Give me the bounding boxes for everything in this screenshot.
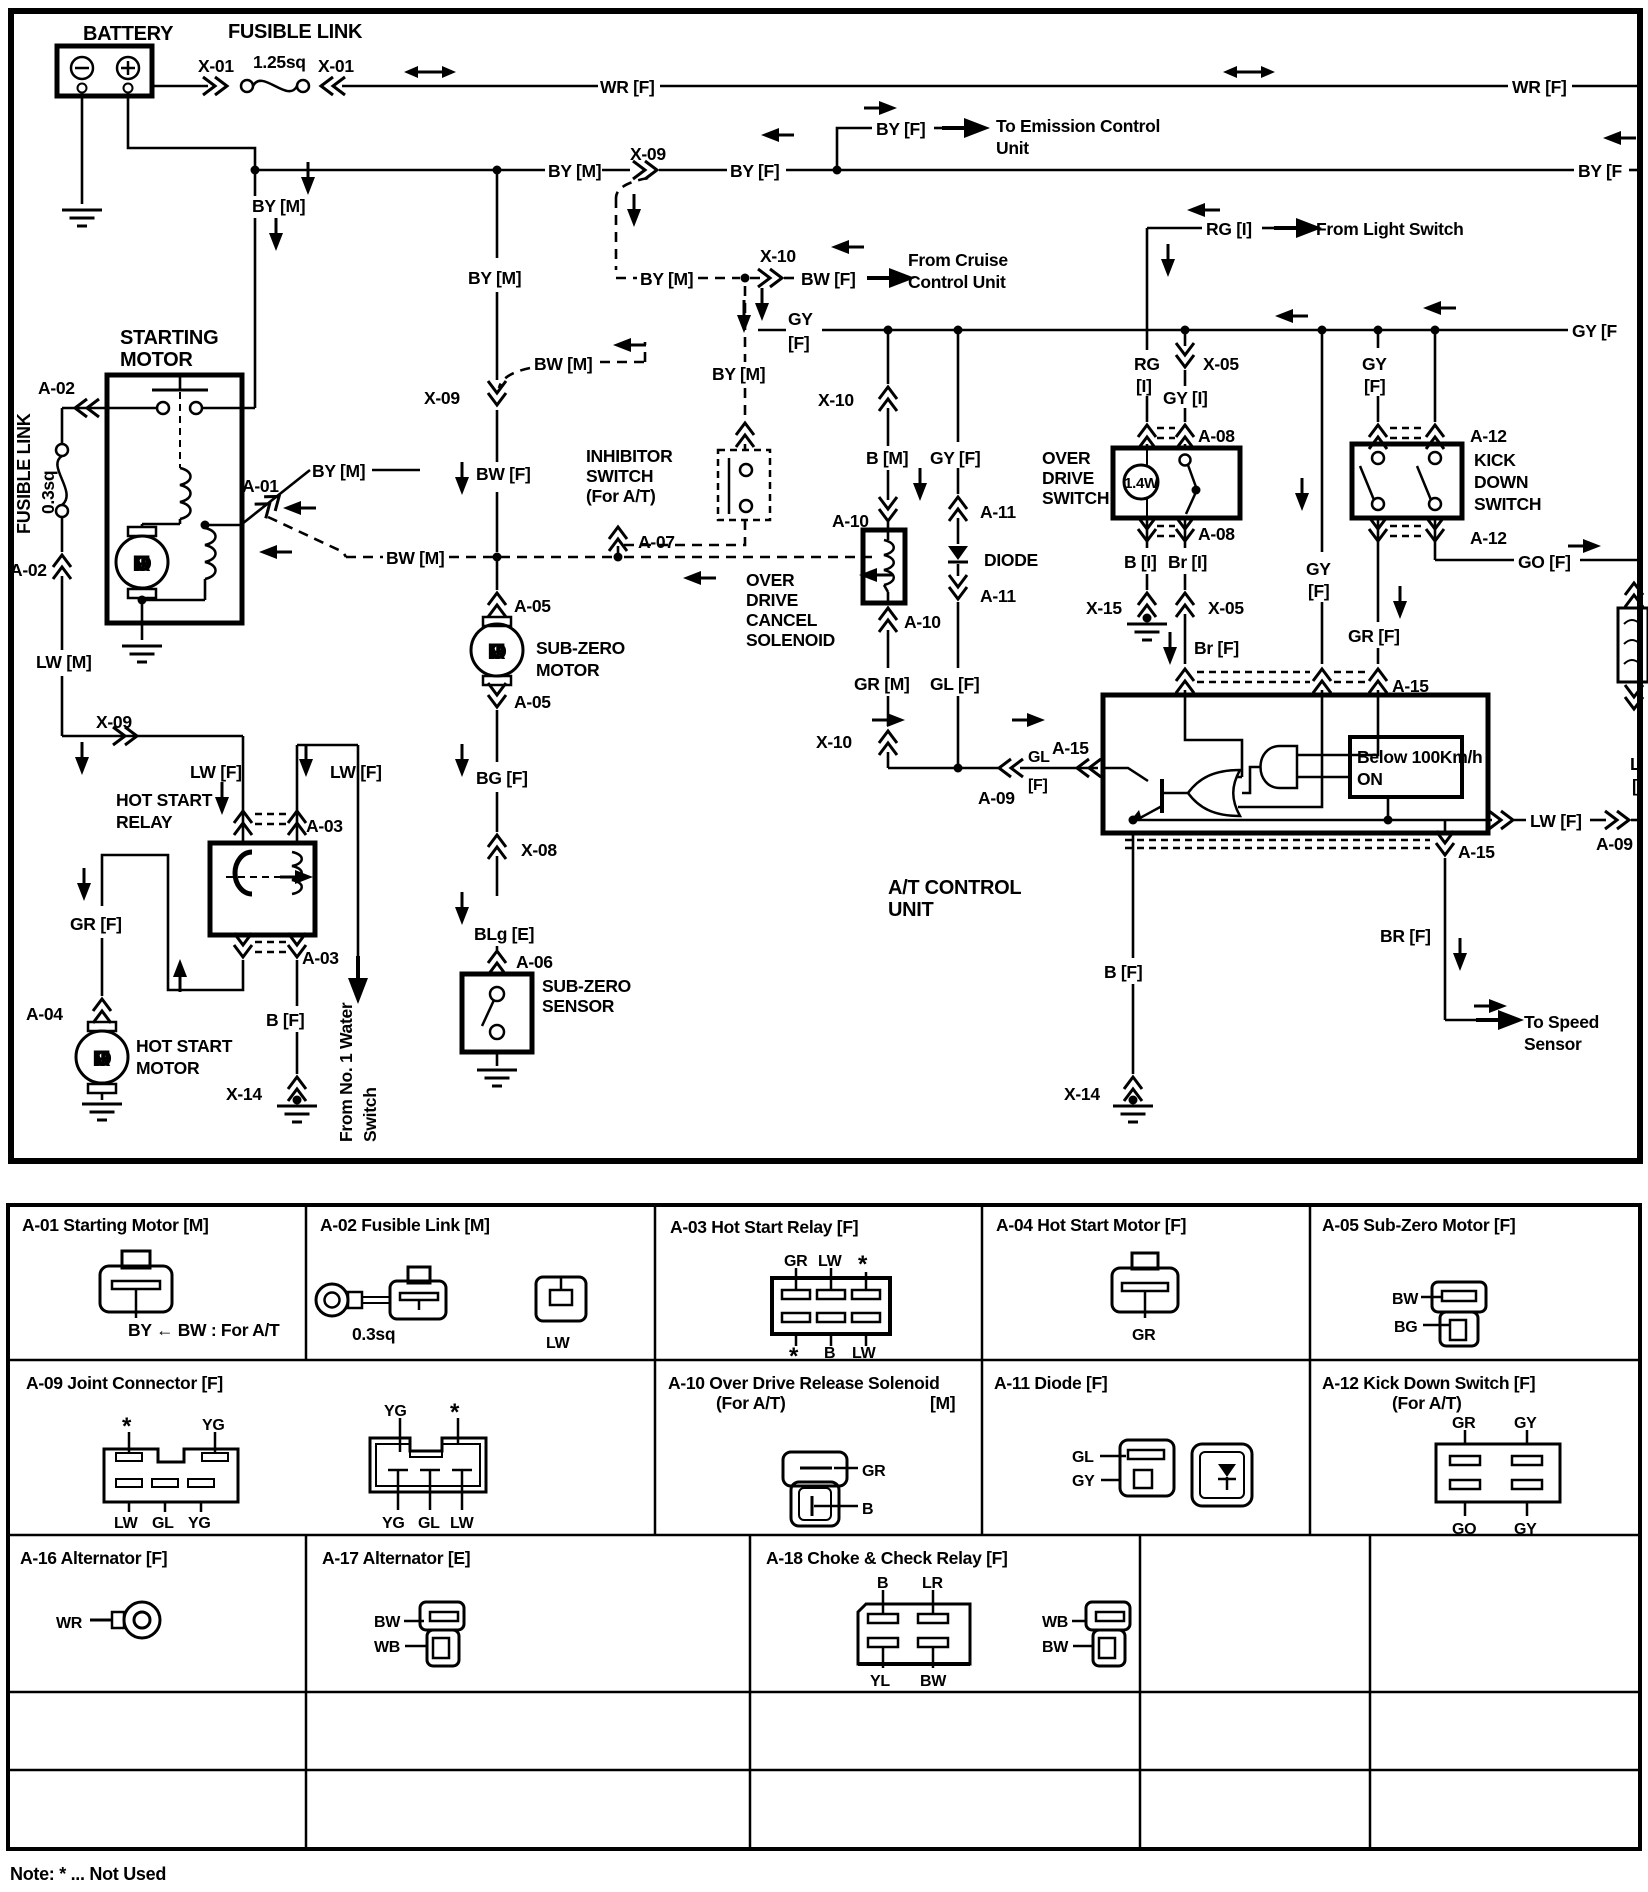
pin-label: YL [870,1673,890,1690]
connector-label: A-08 [1198,524,1235,544]
connector-icon [1605,811,1629,829]
connector-label: A-11 [980,502,1016,522]
cell-title: A-01 Starting Motor [M] [22,1215,209,1235]
connector-label: A-02 [10,560,47,580]
connector-label: A-08 [1198,426,1235,446]
wire-label: BY [M] [252,196,305,216]
connector-icon [488,835,506,859]
wire-label: BW [F] [801,269,856,289]
connector-label: X-10 [818,390,854,410]
connector-icon [321,77,345,95]
wr-wire: WR [F] WR [F] [404,66,1640,97]
component-label: STARTING [120,327,218,349]
wire-label: B [F] [1104,962,1142,982]
wire-label: [F] [1364,376,1385,396]
connector-label: A-02 [38,378,75,398]
wire-label: LW [M] [36,652,92,672]
condition-label: Below 100Km/h [1357,747,1482,767]
component-label: MOTOR [120,349,193,371]
pin-label: BW [920,1673,947,1690]
direction-arrow-icon [913,468,927,501]
direction-arrow-icon [280,870,313,884]
cell-caption: BY ← BW : For A/T [128,1320,280,1340]
destination-label: Switch [360,1087,380,1142]
diode-branch: GY [F] A-11 DIODE A-11 GL [F] [913,330,1038,768]
pin-label: GR [784,1253,808,1270]
fusible-link-125: FUSIBLE LINK X-01 1.25sq X-01 [152,21,598,95]
wire-label: GR [F] [1348,626,1400,646]
ground-icon [82,1104,122,1120]
pin-label: GR [1132,1327,1156,1344]
connector-icon [1369,669,1387,693]
pin-label: B [862,1501,873,1518]
wire-label: L [1630,754,1641,774]
fusible-link-03: FUSIBLE LINK 0.3sq A-02 LW [M] [10,413,92,736]
destination-label: From Cruise [908,250,1008,270]
ground-icon [122,646,162,662]
component-label: A/T CONTROL [888,877,1021,899]
table-cell-a11: A-11 Diode [F] GL GY [994,1373,1252,1506]
table-cell-a04: A-04 Hot Start Motor [F] GR [996,1215,1186,1344]
table-cell-a16: A-16 Alternator [F] WR [20,1548,167,1638]
direction-arrow-icon [755,288,769,321]
connector-label: X-01 [318,56,354,76]
component-label: SWITCH [1474,494,1541,514]
connector-label: X-15 [1086,598,1122,618]
pin-label: BW [1392,1291,1419,1308]
connector-label: X-01 [198,56,234,76]
pin-label: YG [188,1515,211,1532]
pin-label: * [789,1343,799,1370]
wire-label: GY [1362,354,1387,374]
wire-label: BY [F] [876,119,925,139]
pin-label: * [858,1251,868,1278]
connector-label: A-09 [978,788,1015,808]
destination-label: To Speed [1524,1012,1599,1032]
fusible-link-label: FUSIBLE LINK [228,21,363,43]
destination-label: From No. 1 Water [336,1002,356,1142]
connector-label: A-05 [514,596,551,616]
or-gate-icon [1188,770,1240,816]
ground-icon [1127,624,1167,640]
direction-arrow-icon [1423,301,1456,315]
connector-icon [1313,669,1331,693]
direction-arrow-icon [455,892,469,925]
wire-label: GY [I] [1163,388,1208,408]
connector-icon [999,759,1023,777]
destination-arrow-icon [348,956,368,1004]
cell-title: A-02 Fusible Link [M] [320,1215,490,1235]
wire-label: RG [1134,354,1160,374]
wire-label: GY [1306,559,1331,579]
wire-gauge-label: 0.3sq [352,1324,395,1344]
wire-label: BLg [E] [474,924,534,944]
component-label: HOT START [116,790,213,810]
starting-motor: STARTING MOTOR A-02 FUSIBLE LINK 0.3sq A… [10,327,420,736]
connector-icon [488,381,506,405]
direction-arrow-icon [455,744,469,777]
cell-title: A-09 Joint Connector [F] [26,1373,223,1393]
component-label: OVER [1042,448,1091,468]
at-control-unit: A-15 Below 100Km/h ON A/T CONTROL UNIT L… [888,669,1640,1122]
component-label: DIODE [984,550,1038,570]
direction-arrow-icon [1275,309,1308,323]
battery-label: BATTERY [83,23,174,45]
wire-label: [F] [1308,581,1329,601]
sub-zero-column: BY [M] X-09 BW [M] BW [F] A-05 MOTOR SUB… [424,166,646,1087]
connector-icon [1138,593,1156,617]
pin-label: * [122,1413,132,1440]
destination-label: Control Unit [908,272,1006,292]
connector-icon [53,555,71,579]
direction-arrow-icon [283,501,316,515]
connector-icon [758,269,782,287]
wire-label: Br [F] [1194,638,1239,658]
direction-arrow-icon [864,101,897,115]
pin-label: GY [1514,1521,1537,1538]
component-label: DRIVE [1042,468,1094,488]
connector-label: A-15 [1052,738,1089,758]
component-label: MOTOR [136,1058,200,1078]
component-label: FUSIBLE LINK [14,413,34,534]
diode-icon [948,546,968,560]
connector-label: A-12 [1470,528,1507,548]
pin-label: LW [114,1515,139,1532]
component-label: DOWN [1474,472,1528,492]
destination-label: From Light Switch [1316,219,1464,239]
component-label: SUB-ZERO [536,638,625,658]
direction-arrow-icon [269,218,283,251]
component-label: SWITCH [1042,488,1109,508]
wire-label: B [M] [866,448,908,468]
pin-label: GL [152,1515,174,1532]
pin-label: GY [1514,1415,1537,1432]
wiring-diagram-page: BATTERY FUSIBLE LINK X-01 1.25sq X-01 WR… [0,0,1648,1892]
connector-icon [1176,593,1194,617]
wire-label: GL [F] [930,674,979,694]
direction-arrow-icon [831,240,864,254]
connector-icon [879,497,897,521]
connector-label: X-05 [1208,598,1244,618]
wire-label: RG [I] [1206,219,1252,239]
pin-label: WB [1042,1614,1068,1631]
motor-m: MOTOR [92,1046,112,1071]
component-label: OVER [746,570,795,590]
cell-title: A-12 Kick Down Switch [F] [1322,1373,1535,1393]
pin-label: GL [418,1515,440,1532]
hot-start-relay: X-09 LW [F] HOT START RELAY A-03 LW [F] … [62,712,382,1142]
direction-arrow-icon [1187,203,1220,217]
ground-icon [277,1106,317,1122]
direction-arrow-icon [77,868,91,901]
pin-label: GL [1072,1449,1094,1466]
pin-label: BG [1394,1319,1417,1336]
connector-label: A-03 [302,948,339,968]
battery: BATTERY [57,23,255,226]
connector-label: X-10 [816,732,852,752]
connector-table: A-01 Starting Motor [M] BY ← BW : For A/… [8,1205,1640,1849]
table-cell-a09: A-09 Joint Connector [F] * YG LW GL YG Y… [26,1373,486,1532]
ground-icon [477,1070,517,1086]
wire-label: LW [F] [1530,811,1582,831]
wire-label: GO [F] [1518,552,1571,572]
direction-arrow-icon [301,162,315,195]
pin-label: YG [384,1403,407,1420]
wire-label: BY [M] [468,268,521,288]
wire-label: WR [F] [600,77,655,97]
component-label: SUB-ZERO [542,976,631,996]
direction-arrow-icon [1474,999,1507,1013]
table-cell-a12: A-12 Kick Down Switch [F] (For A/T) GR G… [1322,1373,1560,1538]
connector-label: A-07 [638,532,675,552]
connector-label: A-09 [1596,834,1633,854]
direction-arrow-icon [1568,539,1601,553]
connector-label: A-04 [26,1004,63,1024]
overdrive-cancel-solenoid: X-10 B [M] A-10 OVER DRIVE CANCEL SOLENO… [746,330,954,768]
cell-title: A-11 Diode [F] [994,1373,1107,1393]
connector-icon [949,575,967,599]
direction-arrow-icon [259,545,292,559]
component-label: HOT START [136,1036,233,1056]
direction-arrow-icon [455,462,469,495]
bulb-wattage: 1.4W [1124,475,1159,492]
direction-arrow-icon [683,571,716,585]
wire-label: Br [I] [1168,552,1207,572]
pin-label: BW [374,1614,401,1631]
ground-icon [62,210,102,226]
table-cell-a18: A-18 Choke & Check Relay [F] B LR YL BW … [766,1548,1130,1690]
connector-icon [949,497,967,521]
sub-zero-sensor: SUB-ZERO SENSOR [462,974,631,1086]
component-label: KICK [1474,450,1516,470]
destination-arrow-icon [942,118,990,138]
right-edge-partials: L [ [1618,583,1648,796]
direction-arrow-icon [872,713,905,727]
direction-arrow-icon [1161,244,1175,277]
wiring-diagram: BATTERY FUSIBLE LINK X-01 1.25sq X-01 WR… [0,0,1648,1892]
direction-arrow-icon [299,744,313,777]
wire-label: [F] [788,333,809,353]
wire-label: B [F] [266,1010,304,1030]
destination-arrow-icon [1274,218,1322,238]
connector-icon [93,999,111,1023]
motor-m: MOTOR [487,639,507,664]
wire-label: BY [M] [312,461,365,481]
wire-label: BY [F [1578,161,1622,181]
cell-subtitle: (For A/T) [1392,1393,1462,1413]
pin-label: GR [862,1463,886,1480]
direction-arrow-icon [215,782,229,815]
cell-title: A-03 Hot Start Relay [F] [670,1217,858,1237]
direction-arrow-icon [173,959,187,992]
component-label: MOTOR [536,660,600,680]
connector-label: X-05 [1203,354,1239,374]
ground-icon [1113,1106,1153,1122]
direction-arrow-icon [1453,938,1467,971]
pin-label: YG [382,1515,405,1532]
pin-label: B [877,1575,888,1592]
pin-label: YG [202,1417,225,1434]
direction-arrow-icon [1012,713,1045,727]
destination-label: Unit [996,138,1029,158]
connector-label: A-03 [306,816,343,836]
direction-arrow-icon [1603,131,1636,145]
cell-subtitle: [M] [930,1393,955,1413]
wire-label: LW [F] [330,762,382,782]
component-label: SWITCH [586,466,653,486]
connector-icon [879,387,897,411]
connector-label: X-14 [1064,1084,1100,1104]
junction-dot [614,553,623,562]
connector-icon [488,683,506,707]
pin-label: LW [852,1345,877,1362]
wire-label: BY [F] [730,161,779,181]
connector-icon [879,731,897,755]
pin-label: B [824,1345,835,1362]
direction-arrow-icon [737,300,751,333]
bw-m-dashed-wire: BW [M] [259,517,892,585]
cell-title: A-17 Alternator [E] [322,1548,470,1568]
connector-label: X-09 [424,388,460,408]
wire-label: GY [788,309,813,329]
diode-icon [1218,1464,1236,1477]
table-cell-a03: A-03 Hot Start Relay [F] GR LW * * B LW [670,1217,890,1370]
direction-arrow-icon [761,128,794,142]
wire-label: [ [1632,776,1638,796]
wire-label: BW [M] [386,548,444,568]
connector-icon [1176,343,1194,367]
pin-label: LW [450,1515,475,1532]
component-label: (For A/T) [586,486,656,506]
junction-dot [741,274,750,283]
hot-start-motor: A-04 MOTOR HOT START MOTOR [26,999,233,1120]
connector-label: A-01 [242,476,279,496]
component-label: SENSOR [542,996,615,1016]
connector-icon [1489,811,1513,829]
cell-title: A-10 Over Drive Release Solenoid [668,1373,940,1393]
connector-icon [488,951,506,975]
direction-arrow-icon [1163,632,1177,665]
wire-label: GL [1028,749,1050,766]
gl-a09-wire: A-09 GL [F] A-15 [872,713,1101,808]
wire-label: BW [M] [534,354,592,374]
destination-label: To Emission Control [996,116,1160,136]
destination-arrow-icon [1476,1010,1524,1030]
condition-label: ON [1357,769,1383,789]
connector-label: A-06 [516,952,553,972]
table-cell-a17: A-17 Alternator [E] BW WB [322,1548,470,1666]
component-label: RELAY [116,812,173,832]
pin-label: WR [56,1615,83,1632]
pin-label: LW [818,1253,843,1270]
cell-title: A-16 Alternator [F] [20,1548,167,1568]
component-label: SOLENOID [746,630,835,650]
component-label: UNIT [888,899,934,921]
note-text: Note: * ... Not Used [10,1864,166,1884]
wire-label: WR [F] [1512,77,1567,97]
connector-icon [488,593,506,617]
connector-label: X-08 [521,840,557,860]
pin-label: GO [1452,1521,1476,1538]
x09-dashed-branch: BY [M] X-10 BW [F] From Cruise Control U… [616,178,1008,292]
pin-label: LW [546,1335,571,1352]
wire-label: GR [F] [70,914,122,934]
pin-label: GY [1072,1473,1095,1490]
wire-label: GY [F [1572,321,1617,341]
connector-label: A-15 [1458,842,1495,862]
direction-arrow-icon [75,742,89,775]
wire-label: BY [M] [640,269,693,289]
wire-label: [F] [1028,777,1048,794]
wire-label: LW [F] [190,762,242,782]
pin-label: BW [1042,1639,1069,1656]
connector-label: X-10 [760,246,796,266]
cell-subtitle: (For A/T) [716,1393,786,1413]
wire-label: [I] [1136,376,1152,396]
table-cell-a10: A-10 Over Drive Release Solenoid (For A/… [668,1373,955,1526]
connector-label: A-12 [1470,426,1507,446]
direction-arrow-icon [1295,478,1309,511]
pin-label: LR [922,1575,943,1592]
connector-label: A-10 [904,612,941,632]
pin-label: * [450,1399,460,1426]
connector-icon [736,423,754,447]
pin-label: GR [1452,1415,1476,1432]
wire-gauge-label: 0.3sq [38,471,58,514]
wire-label: B [I] [1124,552,1157,572]
wire-label: BY [M] [712,364,765,384]
direction-arrow-icon [1393,586,1407,619]
cell-title: A-04 Hot Start Motor [F] [996,1215,1186,1235]
wire-label: BG [F] [476,768,528,788]
connector-icon [1176,669,1194,693]
cell-title: A-18 Choke & Check Relay [F] [766,1548,1008,1568]
wire-gauge-label: 1.25sq [253,52,306,72]
wire-label: GY [F] [930,448,980,468]
pin-label: WB [374,1639,400,1656]
connector-label: A-05 [514,692,551,712]
direction-arrow-icon [613,338,646,352]
component-label: CANCEL [746,610,818,630]
table-cell-a05: A-05 Sub-Zero Motor [F] BW BG [1322,1215,1515,1346]
destination-label: Sensor [1524,1034,1582,1054]
table-cell-a01: A-01 Starting Motor [M] BY ← BW : For A/… [22,1215,280,1340]
kick-down-switch: GY [F] GY [F] A-12 KICK DOWN SWITCH A-12… [1295,330,1640,664]
and-gate-icon [1261,746,1298,788]
wire-label: GR [M] [854,674,910,694]
component-label: INHIBITOR [586,446,673,466]
footnote: Note: * ... Not Used [10,1864,166,1884]
cell-title: A-05 Sub-Zero Motor [F] [1322,1215,1515,1235]
connector-label: X-14 [226,1084,262,1104]
direction-arrow-icon [404,66,456,78]
wire-label: BW [F] [476,464,531,484]
component-label: DRIVE [746,590,798,610]
motor-m: MOTOR [132,551,152,576]
direction-arrow-icon [627,194,641,227]
wire-label: BR [F] [1380,926,1431,946]
connector-label: A-11 [980,586,1016,606]
connector-icon [879,608,897,632]
wire-label: BY [M] [548,161,601,181]
table-cell-a02: A-02 Fusible Link [M] 0.3sq LW [316,1215,586,1352]
direction-arrow-icon [1223,66,1275,78]
